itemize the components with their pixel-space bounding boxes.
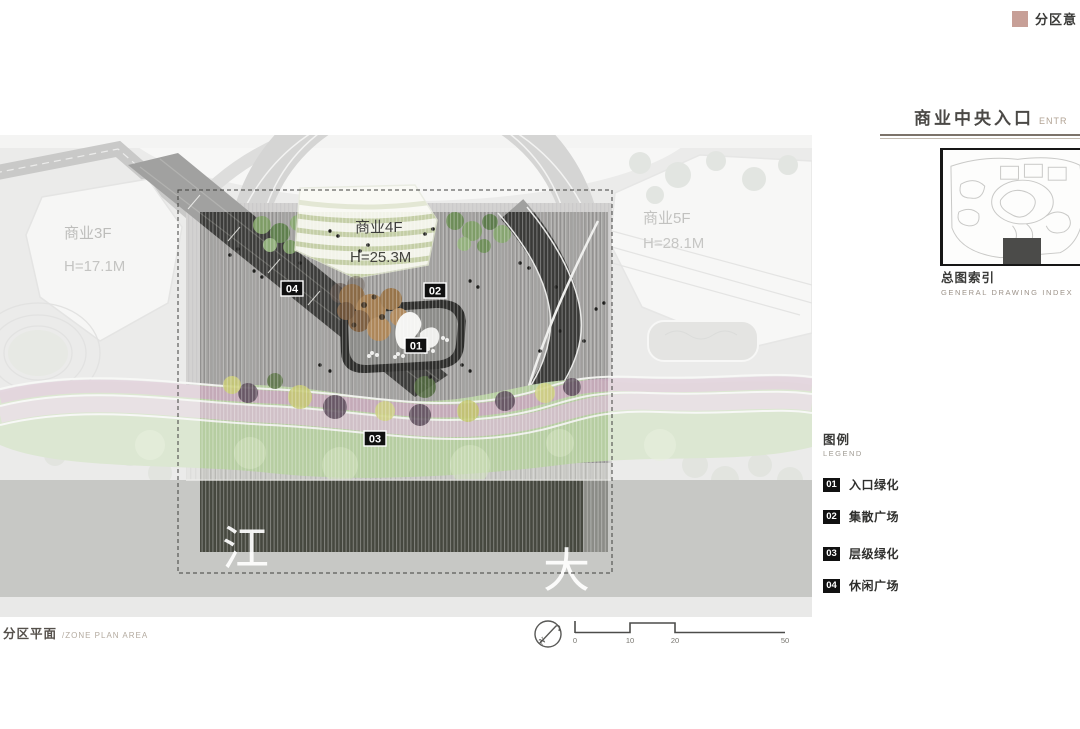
legend-label-04: 休闲广场 (849, 577, 899, 594)
legend-item-03: 03 层级绿化 (823, 545, 899, 562)
legend-item-01: 01 入口绿化 (823, 476, 899, 493)
legend-title-zh: 图例 (823, 429, 899, 448)
legend-title-en: LEGEND (823, 449, 899, 458)
legend-items: 01 入口绿化 02 集散广场 03 层级绿化 04 休闲广场 (823, 476, 899, 594)
scale-bar: 0 10 20 50 (566, 612, 796, 652)
zone-marker-04: 04 (281, 281, 303, 296)
scale-label-20: 20 (671, 636, 679, 645)
svg-text:02: 02 (429, 286, 441, 298)
building-5f-name: 商业5F (643, 210, 691, 227)
scale-label-50: 50 (781, 636, 789, 645)
drawing-index-caption: 总图索引 GENERAL DRAWING INDEX (941, 267, 1073, 297)
title-rule-dark (880, 134, 1080, 136)
svg-text:03: 03 (369, 434, 381, 446)
plan-caption: 分区平面 /ZONE PLAN AREA (3, 623, 148, 642)
building-5f-height: H=28.1M (643, 235, 704, 252)
title-rule-light (880, 138, 1080, 139)
legend-label-03: 层级绿化 (849, 545, 899, 562)
legend: 图例 LEGEND 01 入口绿化 02 集散广场 03 层级绿化 04 休闲广… (823, 429, 899, 594)
north-arrow-compass: N (531, 617, 565, 651)
tag-label: 分区意 (1035, 9, 1077, 28)
legend-label-02: 集散广场 (849, 508, 899, 525)
drawing-index-zh: 总图索引 (941, 267, 1073, 286)
index-location-marker (1003, 238, 1041, 264)
tag-color-swatch (1012, 11, 1028, 27)
drawing-index-en: GENERAL DRAWING INDEX (941, 288, 1073, 297)
road-name-char-1: 江 (222, 522, 269, 575)
road-name-char-2: 大 (543, 544, 590, 597)
building-4f-name: 商业4F (355, 219, 403, 236)
slide-page: { "header": { "tag_label": "分区意", "tag_c… (0, 0, 1080, 729)
section-title-block: 商业中央入口 ENTR (880, 104, 1080, 139)
zone-marker-03: 03 (364, 431, 386, 446)
section-title-zh: 商业中央入口 (914, 104, 1034, 129)
legend-item-04: 04 休闲广场 (823, 577, 899, 594)
legend-item-02: 02 集散广场 (823, 508, 899, 525)
svg-text:01: 01 (410, 341, 422, 353)
page-corner-tag: 分区意 (1012, 9, 1077, 28)
scale-label-10: 10 (626, 636, 634, 645)
legend-num-03: 03 (823, 547, 840, 561)
scale-label-0: 0 (573, 636, 577, 645)
plan-caption-zh: 分区平面 (3, 623, 57, 642)
building-3f-height: H=17.1M (64, 258, 125, 275)
zone-marker-01: 01 (405, 338, 427, 353)
legend-label-01: 入口绿化 (849, 476, 899, 493)
legend-num-02: 02 (823, 510, 840, 524)
building-3f-name: 商业3F (64, 225, 112, 242)
zone-plan-drawing: 江 大 商业3F H=17.1M 商业4F H=25.3M 商业5F H=28.… (0, 135, 812, 617)
zone-marker-02: 02 (424, 283, 446, 298)
building-4f-height: H=25.3M (350, 249, 411, 266)
svg-text:04: 04 (286, 284, 299, 296)
legend-num-04: 04 (823, 579, 840, 593)
section-title-en: ENTR (1039, 116, 1068, 126)
drawing-index-thumbnail (940, 148, 1080, 266)
plan-caption-en: /ZONE PLAN AREA (62, 631, 148, 640)
legend-num-01: 01 (823, 478, 840, 492)
